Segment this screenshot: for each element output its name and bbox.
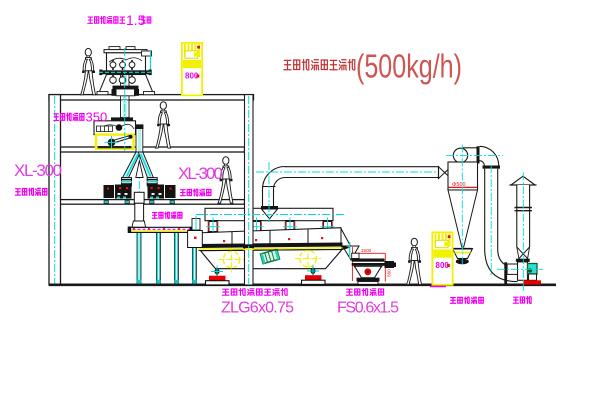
svg-text:FS0.6x1.5: FS0.6x1.5 — [337, 300, 399, 317]
svg-text:(500kg/h): (500kg/h) — [356, 48, 462, 85]
svg-text:XL-300: XL-300 — [14, 161, 62, 180]
svg-text:XL-300: XL-300 — [178, 164, 223, 183]
svg-text:580: 580 — [387, 269, 392, 277]
svg-text:ZLG6x0.75: ZLG6x0.75 — [221, 300, 294, 317]
svg-text:350: 350 — [86, 110, 108, 125]
svg-text:1500: 1500 — [361, 248, 372, 253]
